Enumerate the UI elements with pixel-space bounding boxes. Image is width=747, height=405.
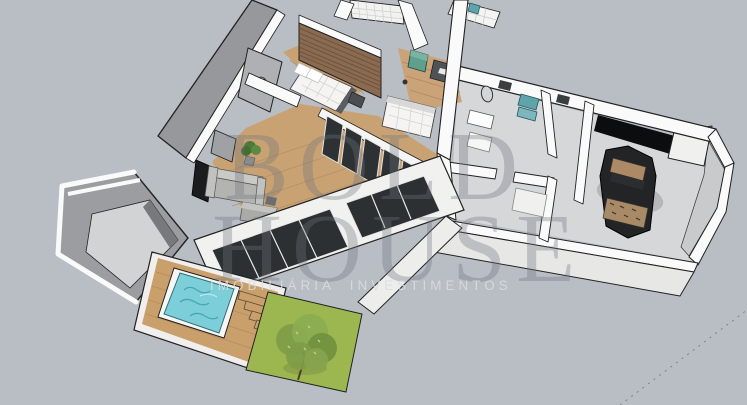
floorplan-screenshot: BOLD HOUSE IMOBILIÁRIA INVESTIMENTOS	[0, 0, 747, 405]
garage-car	[600, 146, 656, 238]
plant-pot	[244, 156, 255, 166]
house-3d-render	[0, 0, 747, 405]
floor-lamp	[403, 80, 408, 85]
